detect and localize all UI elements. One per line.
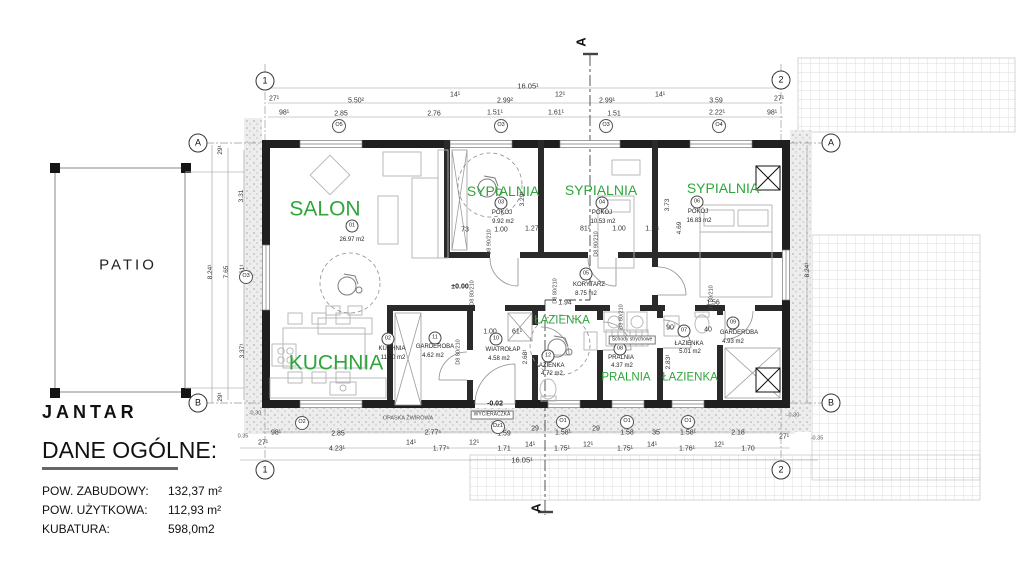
stat-value: 112,93 m² [168, 503, 221, 517]
general-data-list: POW. ZABUDOWY: 132,37 m² POW. UŻYTKOWA: … [42, 484, 222, 536]
patio-slab [50, 163, 244, 398]
stat-label: KUBATURA: [42, 522, 168, 536]
stat-row: POW. UŻYTKOWA: 112,93 m² [42, 503, 222, 517]
general-data-heading: DANE OGÓLNE: [42, 437, 222, 464]
stat-label: POW. UŻYTKOWA: [42, 503, 168, 517]
furniture [270, 150, 772, 401]
stat-label: POW. ZABUDOWY: [42, 484, 168, 498]
floor-plan-page: SALONKUCHNIASYPIALNIASYPIALNIASYPIALNIAŁ… [0, 0, 1024, 577]
stat-row: POW. ZABUDOWY: 132,37 m² [42, 484, 222, 498]
stat-row: KUBATURA: 598,0m2 [42, 522, 222, 536]
heading-underline [42, 467, 178, 470]
stat-value: 132,37 m² [168, 484, 222, 498]
title-block: JANTAR DANE OGÓLNE: POW. ZABUDOWY: 132,3… [42, 402, 222, 541]
stat-value: 598,0m2 [168, 522, 215, 536]
project-name: JANTAR [42, 402, 222, 423]
windows [263, 141, 790, 408]
section-line [538, 54, 598, 515]
